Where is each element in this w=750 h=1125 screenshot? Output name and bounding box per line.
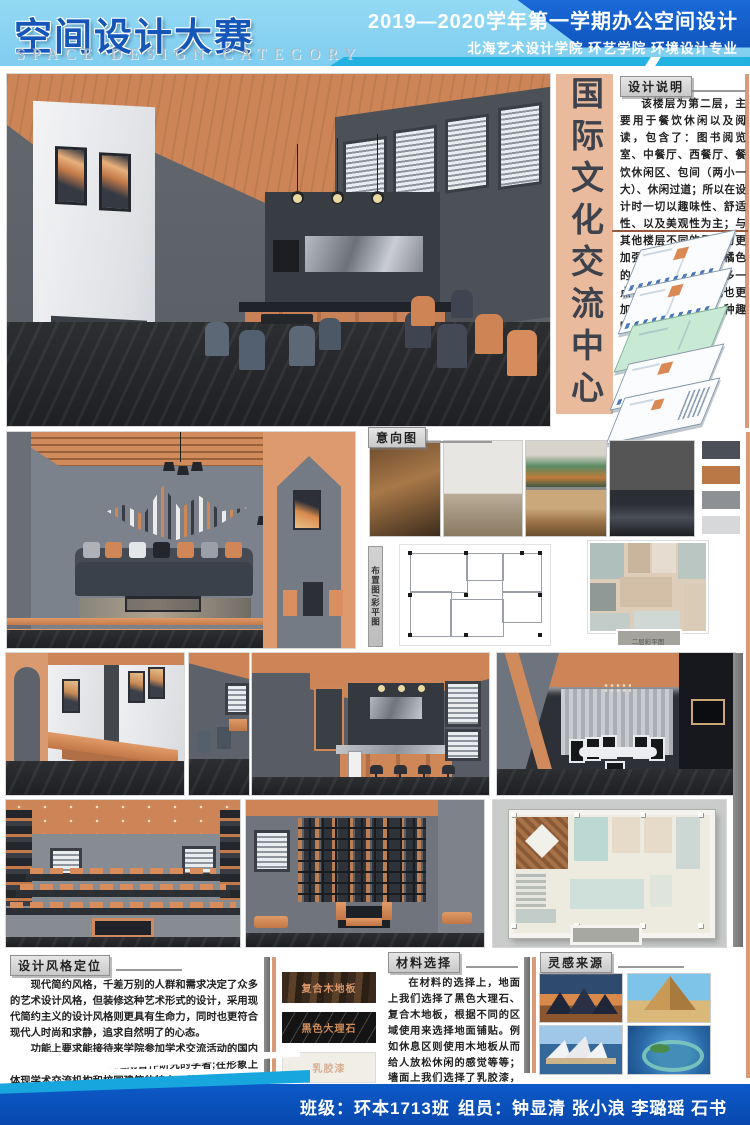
pendant-lamp [177, 466, 189, 475]
door-frame [314, 687, 344, 751]
orange-counter [229, 719, 247, 731]
lounge-chair [451, 290, 473, 318]
pendant-lamp [373, 194, 382, 203]
inspiration-pyramid-day [628, 974, 710, 1022]
plan-caption: 二层彩平图 [590, 636, 706, 646]
island-green [650, 1044, 670, 1053]
window-blinds [254, 830, 290, 872]
style-paragraph-1: 现代简约风格，千差万别的人群和需求决定了众多的艺术设计风格，但装修这种艺术形式的… [10, 978, 258, 1042]
bar-stool [370, 765, 383, 774]
chandelier [603, 683, 631, 693]
pit-seat [346, 918, 382, 926]
pit-seat [336, 902, 346, 920]
building-shell [509, 810, 715, 938]
palette-swatch-gray [702, 491, 740, 509]
pillow-orange [177, 542, 194, 558]
platform-step [7, 618, 269, 625]
marble-backsplash [370, 697, 422, 719]
lounge-bench [254, 916, 288, 928]
central-hall [570, 879, 644, 909]
lounge-chair [437, 324, 467, 368]
dining-chair [289, 326, 315, 366]
divider-salmon [532, 957, 536, 1073]
orange-ceiling-band [48, 653, 184, 665]
palette-swatch-darkgray [702, 441, 740, 459]
render-restaurant-main [7, 74, 550, 426]
pillow-orange [225, 542, 242, 558]
class-label: 班级：环本1713班 [300, 1094, 450, 1119]
window-blinds [445, 681, 481, 727]
window-blinds [445, 729, 481, 761]
material-label-paint: 乳胶漆 [313, 1060, 346, 1075]
lounge-bench [442, 912, 472, 924]
booth-bench [329, 590, 343, 616]
mood-image-lounge [610, 490, 694, 536]
terrace [573, 928, 639, 942]
wall-painting [62, 679, 80, 713]
palette-swatch-lightgray [702, 516, 740, 534]
material-label-marble: 黑色大理石 [302, 1020, 357, 1035]
design-note-label: 设计说明 [620, 76, 692, 97]
staircase [516, 873, 546, 907]
material-swatch-marble: 黑色大理石 [282, 1012, 376, 1043]
pit-seat [382, 902, 392, 920]
display-shelf [691, 699, 725, 725]
course-info: 2019—2020学年第一学期办公空间设计 北海艺术设计学院 环艺学院 环境设计… [368, 5, 738, 57]
render-lounge [7, 432, 355, 648]
render-reading-tiers [6, 800, 240, 947]
render-dining-room [497, 653, 735, 795]
wall-painting [99, 152, 131, 212]
dining-chair [205, 322, 229, 356]
mood-section-label: 意向图 [368, 427, 426, 448]
gray-column [104, 653, 119, 749]
wall-oven [273, 240, 299, 272]
poster-subtitle: SPACE DESIGN CATEGORY [16, 46, 362, 64]
private-room [612, 817, 640, 853]
inspiration-opera-house [540, 1026, 622, 1074]
plan-3d-overview [493, 800, 726, 947]
skyline-wall-art [107, 478, 247, 542]
marble-floor [252, 777, 489, 795]
inspiration-island [628, 1026, 710, 1074]
bar-back-wall [265, 192, 440, 304]
window-blinds [225, 683, 249, 715]
members-label: 组员：钟显清 张小浪 李璐瑶 石书 [458, 1094, 727, 1119]
opera-base [546, 1058, 616, 1064]
design-poster: 空间设计大赛 SPACE DESIGN CATEGORY 2019—2020学年… [0, 0, 750, 1125]
bar-stool [442, 765, 455, 774]
corner-room [650, 875, 672, 907]
window-blinds [498, 102, 542, 190]
label-underline [116, 969, 182, 971]
orange-chair [475, 314, 503, 354]
divider-gray [524, 957, 530, 1073]
teal-room [574, 817, 608, 861]
pillow [83, 542, 100, 558]
marble-floor [6, 761, 184, 795]
center-pit [92, 918, 154, 938]
mood-image-seating [526, 441, 606, 487]
edge-strip-salmon [746, 432, 750, 1078]
plans-label-text: 布置图/彩平图 [370, 566, 382, 626]
orange-chair [411, 296, 435, 326]
mood-image-cafe [370, 441, 440, 536]
pendant-lamp [418, 685, 425, 692]
header-teal-strip [330, 57, 750, 66]
pendant-lamp [378, 685, 385, 692]
wall-painting [55, 146, 87, 206]
material-label-wood: 复合木地板 [302, 980, 357, 995]
pendant-stem [337, 138, 338, 194]
marble-floor [497, 769, 735, 795]
marble-floor [189, 759, 249, 795]
pillow-dark [153, 542, 170, 558]
long-dining-table [579, 747, 657, 757]
marble-backsplash [305, 236, 423, 272]
color-floor-plan [590, 543, 706, 631]
vertical-title-banner: 国际文化交流中心 [556, 74, 613, 414]
mood-image-classroom [526, 490, 606, 536]
window-blinds [445, 113, 489, 193]
marble-floor [246, 933, 484, 947]
edge-strip-gray [733, 653, 743, 947]
pendant-stem [297, 144, 298, 194]
label-underline [466, 966, 518, 968]
sectional-sofa [75, 548, 253, 596]
chair [197, 731, 211, 753]
side-room [676, 817, 700, 869]
pendant-lamp [398, 685, 405, 692]
render-dining-glimpse [189, 653, 249, 795]
pillow [201, 542, 218, 558]
pendant-stem [180, 432, 181, 462]
arch-niche [277, 456, 341, 648]
orange-ceiling [189, 653, 249, 679]
pendant-lamp [293, 194, 302, 203]
wall-painting [148, 667, 165, 699]
mood-image-dining [444, 441, 522, 536]
orange-chair [507, 330, 537, 376]
course-line2: 北海艺术设计学院 环艺学院 环境设计专业 [368, 37, 738, 57]
inspiration-pyramids-sunset [540, 974, 622, 1022]
wall-painting [128, 671, 145, 703]
materials-section-label: 材料选择 [388, 952, 460, 973]
header-banner: 空间设计大赛 SPACE DESIGN CATEGORY 2019—2020学年… [0, 0, 750, 66]
label-underline [422, 441, 492, 443]
palette-swatch-orange [702, 466, 740, 484]
pillow [129, 542, 146, 558]
private-room [644, 817, 672, 853]
material-swatch-wood: 复合木地板 [282, 972, 376, 1003]
dining-chair [319, 318, 341, 350]
render-corridor [6, 653, 184, 795]
bookshelf-wall [298, 818, 426, 902]
inspiration-section-label: 灵感来源 [540, 952, 612, 973]
mood-image-bar [610, 441, 694, 487]
dining-table [261, 314, 313, 324]
pendant-lamp [191, 462, 203, 471]
mood-image-stack-1 [526, 441, 606, 536]
pendant-stem [377, 134, 378, 194]
side-wall [7, 432, 31, 648]
pendant-lamp [163, 462, 175, 471]
render-library [246, 800, 484, 947]
wc-room [516, 909, 556, 923]
orange-ceiling [6, 800, 240, 834]
center-name-text: 国际文化交流中心 [561, 76, 609, 412]
booth-bench [283, 590, 297, 616]
bar-stool [418, 765, 431, 774]
marble-floor [6, 937, 240, 947]
axonometric-floor-diagram [610, 238, 750, 428]
mood-image-stack-2 [610, 441, 694, 536]
bar-stool [394, 765, 407, 774]
gray-column [438, 800, 484, 947]
pendant-lamp [333, 194, 342, 203]
dining-chair [239, 330, 265, 370]
cad-floor-plan [400, 545, 550, 645]
render-bar-counter [252, 653, 489, 795]
course-line1: 2019—2020学年第一学期办公空间设计 [368, 5, 738, 34]
label-underline [618, 966, 684, 968]
booth-table [303, 582, 323, 616]
plans-section-label: 布置图/彩平图 [368, 546, 383, 647]
coffee-table [125, 596, 201, 612]
niche-painting [293, 490, 321, 530]
pillow-orange [105, 542, 122, 558]
style-section-label: 设计风格定位 [10, 955, 110, 976]
